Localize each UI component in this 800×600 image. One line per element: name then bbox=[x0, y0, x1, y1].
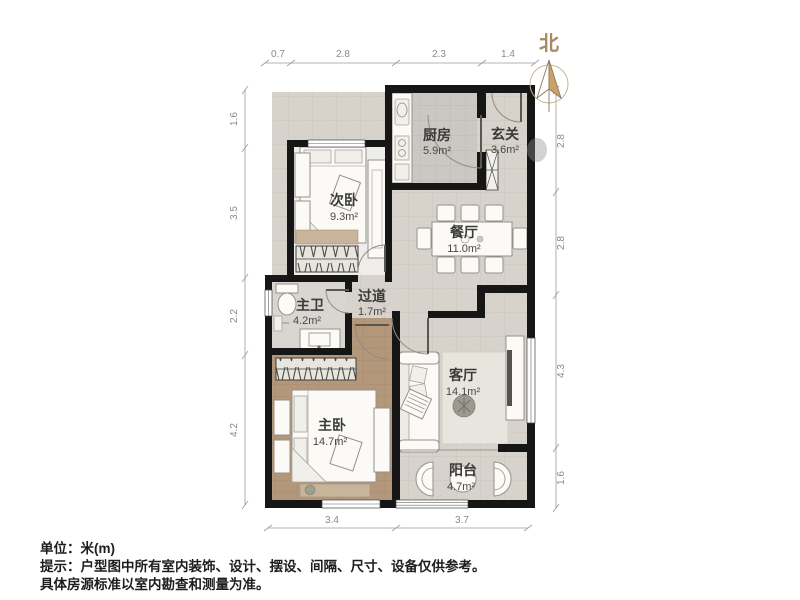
window-balcony bbox=[396, 500, 468, 508]
nightstand bbox=[274, 400, 290, 435]
dim-left-2: 2.2 bbox=[229, 309, 240, 323]
disclaimer-line2: 具体房源标准以室内勘查和测量为准。 bbox=[39, 576, 270, 592]
dim-bottom-0: 3.4 bbox=[325, 515, 339, 526]
dining-chair bbox=[437, 205, 455, 221]
window-bedroom2 bbox=[308, 140, 365, 147]
room-entry-label: 玄关 bbox=[491, 126, 519, 142]
bedroom2-furniture bbox=[295, 147, 386, 272]
entry-furniture bbox=[486, 150, 498, 190]
dim-right-0: 2.8 bbox=[556, 134, 567, 148]
dining-chair bbox=[513, 228, 527, 249]
unit-note: 单位：米(m) bbox=[40, 540, 115, 556]
room-bedroom2-label: 次卧 bbox=[330, 192, 358, 208]
tv bbox=[507, 350, 512, 406]
nightstand bbox=[295, 153, 310, 197]
dining-chair bbox=[485, 257, 503, 273]
pillow bbox=[409, 366, 427, 384]
room-bathroom-area: 4.2m² bbox=[293, 315, 321, 327]
dim-left-1: 3.5 bbox=[229, 206, 240, 220]
dim-bottom-1: 3.7 bbox=[455, 515, 469, 526]
north-label: 北 bbox=[539, 32, 559, 55]
shower-fixture bbox=[274, 316, 282, 331]
room-living-area: 14.1m² bbox=[446, 386, 481, 398]
dim-right-2: 4.3 bbox=[556, 364, 567, 378]
window-living bbox=[527, 338, 535, 423]
dining-chair bbox=[437, 257, 455, 273]
room-kitchen-area: 5.9m² bbox=[423, 145, 451, 157]
room-entry-area: 3.6m² bbox=[491, 144, 519, 156]
window-bedroom1 bbox=[322, 500, 380, 508]
pillow bbox=[294, 396, 307, 432]
dim-top-1: 2.8 bbox=[336, 49, 350, 60]
dim-top-3: 1.4 bbox=[501, 49, 515, 60]
room-living-label: 客厅 bbox=[448, 367, 477, 383]
floorplan-page: 厨房 5.9m² 玄关 3.6m² 次卧 9.3m² 餐厅 11.0m² 过道 … bbox=[0, 0, 800, 600]
window-bathroom bbox=[265, 290, 272, 316]
dim-right-3: 1.6 bbox=[556, 471, 567, 485]
fridge bbox=[395, 164, 409, 180]
room-hallway-label: 过道 bbox=[358, 288, 386, 304]
desk-cabinet bbox=[368, 160, 386, 258]
dim-right-1: 2.8 bbox=[556, 236, 567, 250]
kitchen-furniture bbox=[392, 93, 412, 183]
nightstand bbox=[274, 440, 290, 473]
room-dining-label: 餐厅 bbox=[449, 224, 478, 240]
dimensions-top: 0.7 2.8 2.3 1.4 bbox=[261, 49, 539, 66]
disclaimer-line1: 提示：户型图中所有室内装饰、设计、摆设、间隔、尺寸、设备仅供参考。 bbox=[40, 558, 486, 574]
footer-notes: 单位：米(m) 提示：户型图中所有室内装饰、设计、摆设、间隔、尺寸、设备仅供参考… bbox=[39, 540, 486, 592]
toilet bbox=[278, 293, 296, 315]
dresser bbox=[374, 408, 390, 472]
dimensions-bottom: 3.4 3.7 bbox=[264, 515, 532, 531]
dining-chair bbox=[485, 205, 503, 221]
pillow bbox=[335, 150, 362, 163]
floorplan-canvas: 厨房 5.9m² 玄关 3.6m² 次卧 9.3m² 餐厅 11.0m² 过道 … bbox=[0, 0, 800, 600]
room-kitchen-label: 厨房 bbox=[423, 127, 451, 143]
dining-chair bbox=[417, 228, 431, 249]
plant bbox=[305, 485, 315, 495]
sofa-armrest bbox=[399, 352, 439, 364]
room-balcony-area: 4.7m² bbox=[447, 481, 475, 493]
dining-chair bbox=[461, 257, 479, 273]
rug bbox=[442, 352, 508, 444]
dimensions-right: 2.8 2.8 4.3 1.6 bbox=[553, 86, 567, 512]
toilet-tank bbox=[276, 284, 298, 293]
room-hallway-area: 1.7m² bbox=[358, 306, 386, 318]
room-bedroom1-area: 14.7m² bbox=[313, 436, 348, 448]
dim-left-3: 4.2 bbox=[229, 423, 240, 437]
bench-shelf bbox=[296, 230, 358, 244]
room-bathroom-label: 主卫 bbox=[296, 297, 324, 313]
north-indicator: 北 bbox=[530, 32, 568, 112]
watermark-dot bbox=[527, 138, 547, 162]
dining-chair bbox=[461, 205, 479, 221]
room-bedroom1-label: 主卧 bbox=[318, 417, 346, 433]
dim-left-0: 1.6 bbox=[229, 112, 240, 126]
room-dining-area: 11.0m² bbox=[447, 243, 481, 255]
room-bedroom2-area: 9.3m² bbox=[330, 211, 358, 223]
dim-top-0: 0.7 bbox=[271, 49, 285, 60]
dim-top-2: 2.3 bbox=[432, 49, 446, 60]
dimensions-left: 1.6 3.5 2.2 4.2 bbox=[229, 86, 248, 509]
room-balcony-label: 阳台 bbox=[449, 462, 477, 478]
